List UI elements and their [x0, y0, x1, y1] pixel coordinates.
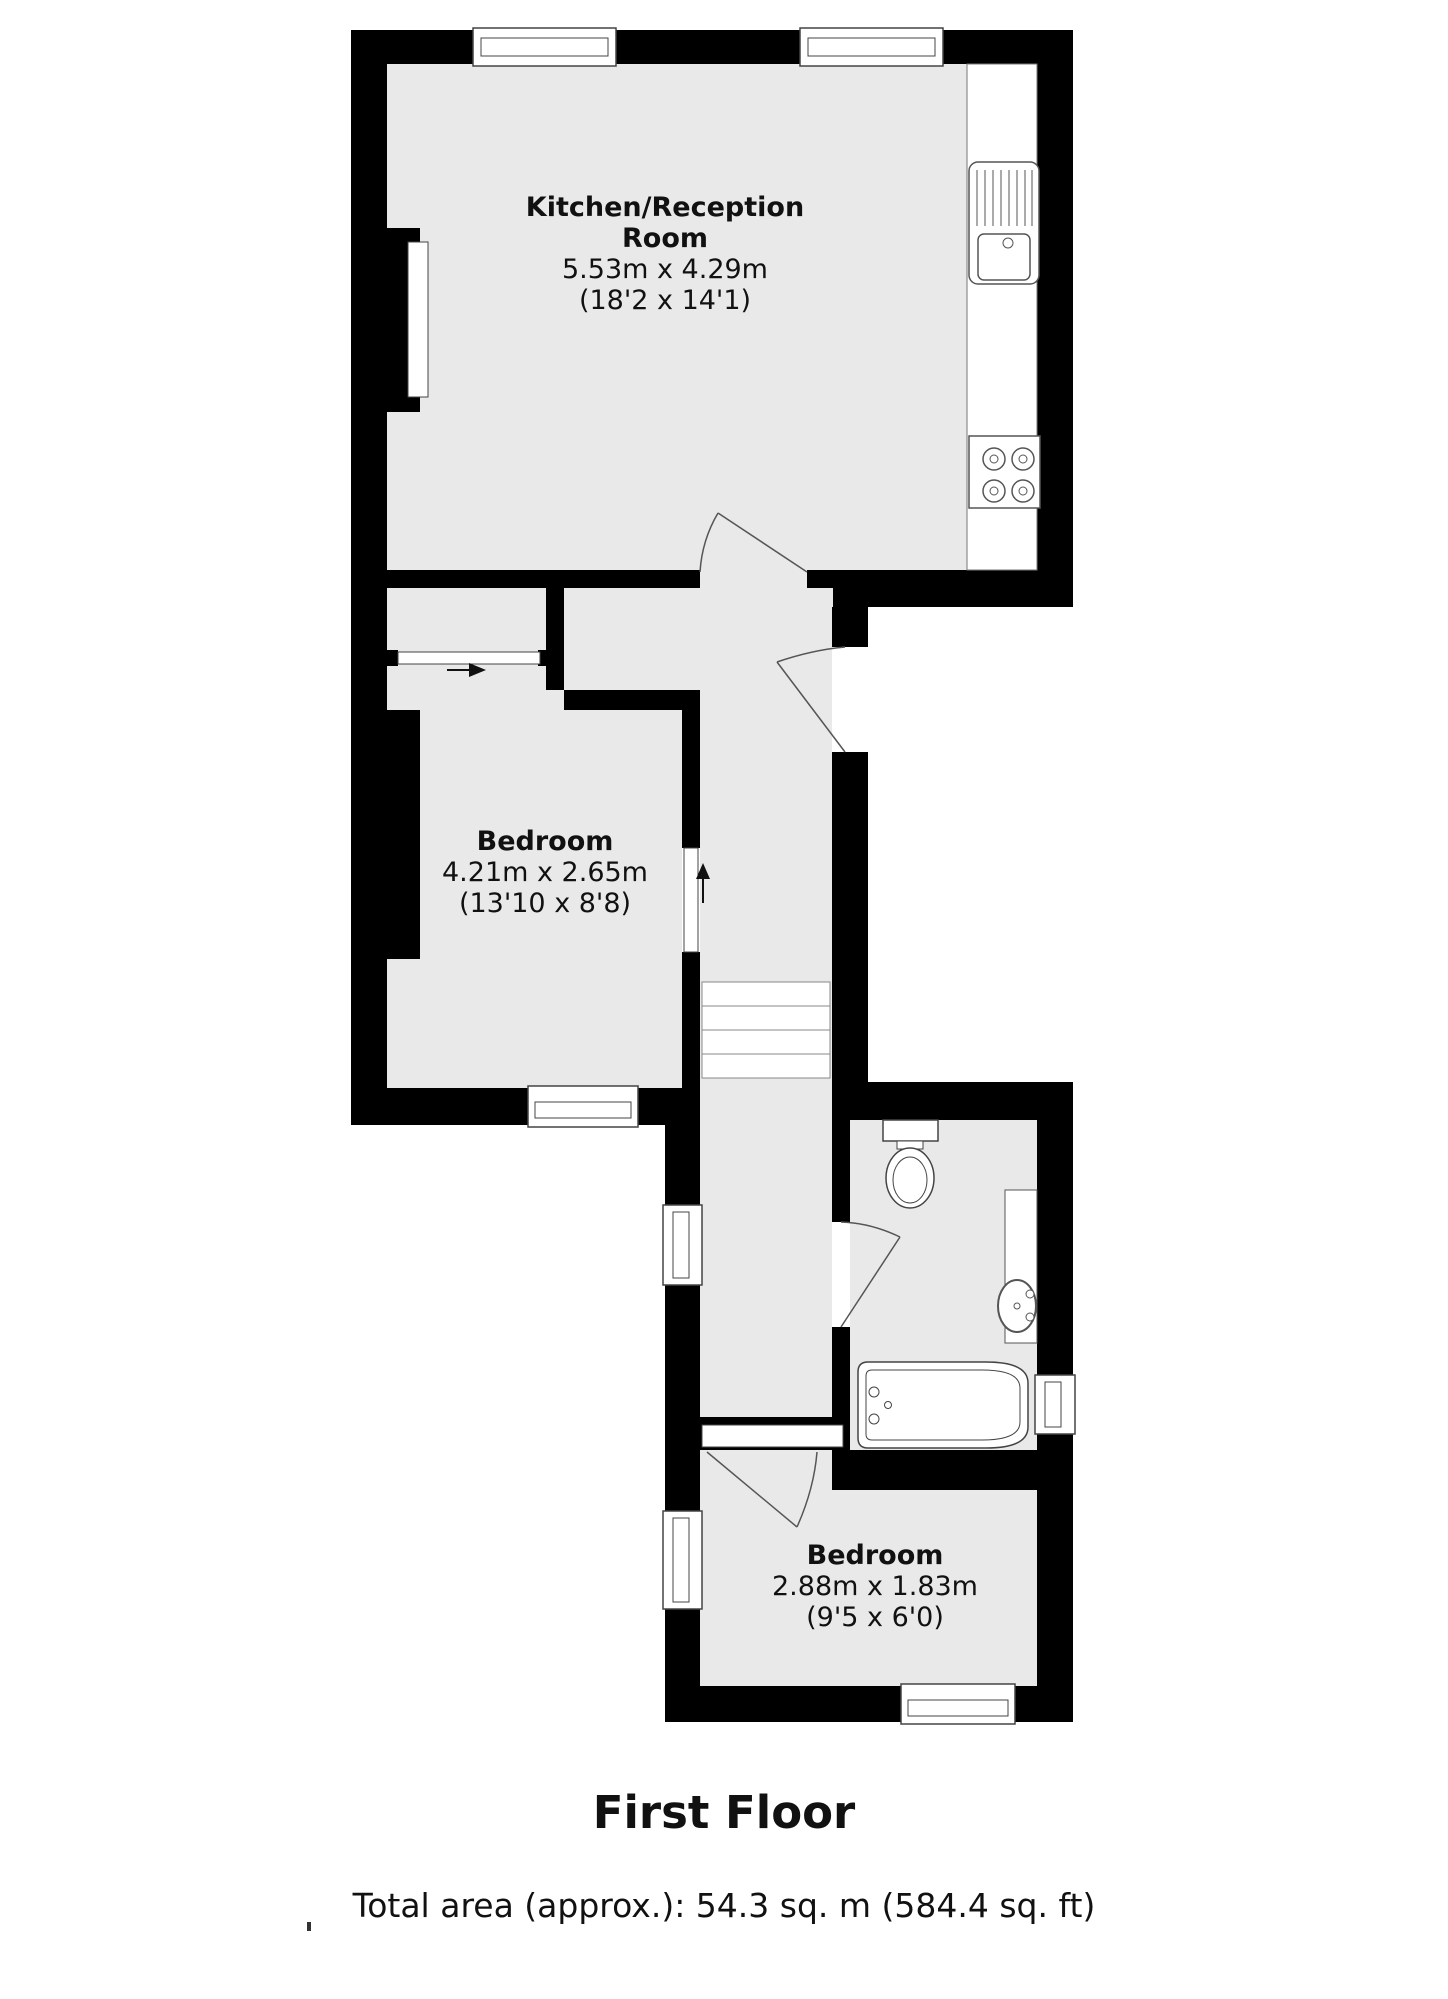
basin-tap — [1026, 1290, 1034, 1298]
wall — [832, 752, 868, 1082]
wall — [832, 1450, 1073, 1490]
room-dimensions-imperial: (13'10 x 8'8) — [385, 888, 705, 919]
wall — [807, 570, 1073, 588]
stair-tread — [702, 1006, 830, 1030]
wall — [351, 30, 387, 1125]
door-opening-bedroom2 — [702, 1425, 843, 1447]
kitchen-floor — [387, 64, 1037, 570]
hob — [969, 436, 1040, 508]
window-kitchen-1 — [473, 28, 616, 66]
stair-tread — [702, 1030, 830, 1054]
wall — [546, 588, 564, 690]
stair-tread — [702, 982, 830, 1006]
window-bedroom2-bottom — [901, 1684, 1015, 1724]
room-dimensions-imperial: (9'5 x 6'0) — [715, 1602, 1035, 1633]
wall — [387, 570, 700, 588]
room-dimensions-imperial: (18'2 x 14'1) — [450, 285, 880, 316]
bath-tap — [869, 1387, 879, 1397]
floor-title: First Floor — [424, 1786, 1024, 1839]
wall — [351, 1088, 530, 1125]
wall — [665, 1283, 700, 1417]
wall — [832, 1327, 850, 1417]
window-bedroom1 — [528, 1086, 638, 1127]
kitchen-room-label: Kitchen/Reception Room 5.53m x 4.29m (18… — [450, 192, 880, 316]
staircase — [702, 982, 830, 1078]
wall — [665, 1417, 700, 1513]
vestibule-floor-left — [387, 588, 546, 653]
room-dimensions-metric: 2.88m x 1.83m — [715, 1571, 1035, 1602]
wall — [1013, 1686, 1073, 1722]
wall — [682, 690, 700, 848]
wall — [682, 952, 700, 1088]
kitchen-door-gap-floor — [700, 570, 807, 588]
bedroom2-room-label: Bedroom 2.88m x 1.83m (9'5 x 6'0) — [715, 1540, 1035, 1633]
wall — [665, 1686, 903, 1722]
kitchen-sink — [969, 162, 1039, 284]
sink-tap — [1003, 238, 1013, 248]
bath-tap — [869, 1414, 879, 1424]
wall — [833, 588, 1073, 607]
wall — [616, 30, 800, 64]
wall — [832, 1082, 1073, 1120]
fireplace-recess — [408, 242, 428, 397]
stair-tread — [702, 1054, 830, 1078]
entrance-threshold — [832, 647, 868, 752]
total-area-text: Total area (approx.): 54.3 sq. m (584.4 … — [224, 1886, 1224, 1925]
room-dimensions-metric: 5.53m x 4.29m — [450, 254, 880, 285]
wall — [1037, 30, 1073, 607]
window-kitchen-2 — [800, 28, 943, 66]
window-bedroom2-left — [663, 1511, 702, 1609]
wall — [1037, 1432, 1073, 1722]
wall — [1037, 1082, 1073, 1377]
bedroom1-room-label: Bedroom 4.21m x 2.65m (13'10 x 8'8) — [385, 826, 705, 919]
room-name: Bedroom — [715, 1540, 1035, 1571]
stray-mark — [307, 1922, 311, 1931]
wall — [665, 1118, 700, 1207]
floor-plan: Kitchen/Reception Room 5.53m x 4.29m (18… — [0, 0, 1448, 1999]
sliding-door-bedroom1-top — [398, 652, 540, 664]
window-hall — [663, 1205, 702, 1285]
room-name: Bedroom — [385, 826, 705, 857]
room-name: Room — [450, 223, 880, 254]
wall — [564, 690, 682, 710]
room-name: Kitchen/Reception — [450, 192, 880, 223]
door-opening-bathroom — [832, 1222, 850, 1327]
basin-tap — [1026, 1313, 1034, 1321]
wall — [832, 1120, 850, 1222]
hall-corner-floor — [807, 588, 833, 607]
toilet-cistern — [883, 1120, 938, 1141]
window-bathroom — [1035, 1375, 1075, 1434]
bathtub — [858, 1362, 1028, 1448]
room-dimensions-metric: 4.21m x 2.65m — [385, 857, 705, 888]
wall — [387, 650, 398, 666]
toilet — [883, 1120, 938, 1208]
wall — [832, 607, 868, 647]
